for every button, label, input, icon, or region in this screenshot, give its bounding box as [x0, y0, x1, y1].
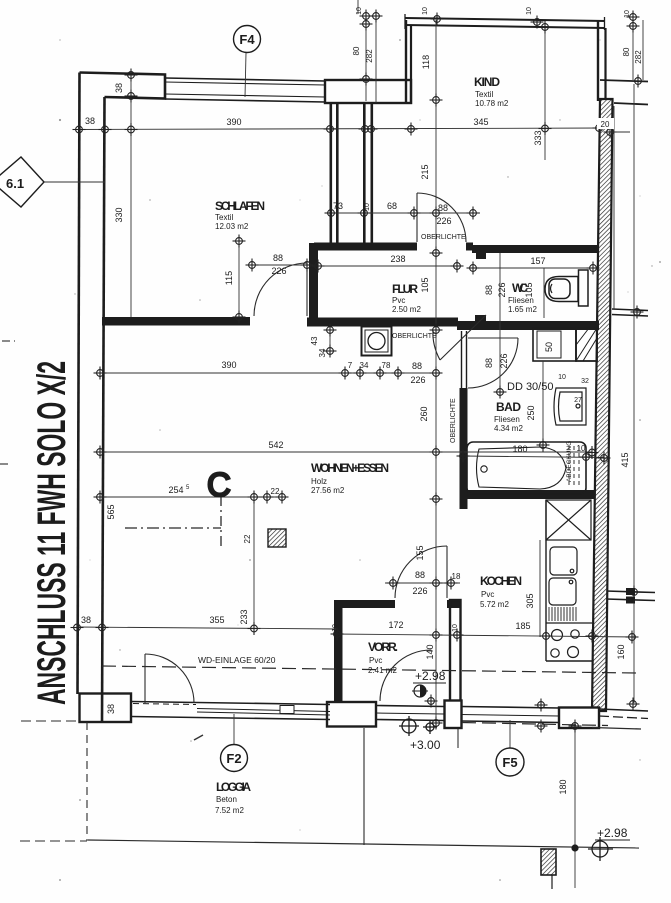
svg-text:Textil: Textil [475, 90, 493, 99]
svg-text:10: 10 [356, 7, 363, 15]
svg-text:88: 88 [273, 253, 283, 263]
svg-text:Textil: Textil [215, 213, 233, 222]
svg-text:282: 282 [365, 49, 374, 63]
svg-text:+2.98: +2.98 [415, 669, 446, 683]
svg-text:105: 105 [524, 282, 534, 297]
svg-text:88: 88 [412, 361, 422, 371]
svg-text:KIND: KIND [474, 75, 500, 89]
svg-text:27: 27 [574, 397, 582, 404]
svg-text:F5: F5 [502, 755, 517, 770]
svg-text:260: 260 [419, 406, 429, 421]
svg-text:140: 140 [425, 644, 435, 659]
svg-text:185: 185 [515, 621, 530, 631]
svg-text:68: 68 [387, 201, 397, 211]
svg-text:226: 226 [499, 353, 509, 368]
svg-text:4.34 m2: 4.34 m2 [494, 424, 523, 433]
svg-text:C: C [207, 466, 231, 503]
svg-text:333: 333 [533, 130, 543, 145]
svg-text:WOHNEN+ESSEN: WOHNEN+ESSEN [311, 461, 389, 475]
svg-text:233: 233 [239, 609, 249, 624]
svg-text:1.65 m2: 1.65 m2 [508, 305, 537, 314]
svg-text:80: 80 [352, 46, 361, 55]
svg-text:34: 34 [360, 361, 369, 370]
svg-text:ANSCHLUSS 11 FWH SOLO X/2: ANSCHLUSS 11 FWH SOLO X/2 [30, 361, 74, 705]
svg-text:226: 226 [497, 282, 507, 297]
svg-text:27.56 m2: 27.56 m2 [311, 486, 345, 495]
svg-text:172: 172 [388, 620, 403, 630]
svg-text:180: 180 [512, 444, 527, 454]
svg-text:2.41 m2: 2.41 m2 [368, 666, 397, 675]
svg-text:5.72 m2: 5.72 m2 [480, 600, 509, 609]
svg-text:18: 18 [452, 572, 461, 581]
svg-text:ABDECKUNG: ABDECKUNG [566, 441, 573, 482]
svg-text:73: 73 [333, 201, 343, 211]
svg-text:160: 160 [616, 644, 626, 659]
svg-text:38: 38 [85, 116, 95, 126]
svg-text:78: 78 [382, 361, 391, 370]
svg-text:10: 10 [452, 624, 459, 632]
svg-text:LOGGIA: LOGGIA [216, 780, 251, 794]
svg-text:OBERLICHTE: OBERLICHTE [450, 398, 457, 443]
svg-text:565: 565 [106, 504, 116, 519]
svg-text:88: 88 [484, 285, 494, 295]
svg-text:7: 7 [348, 361, 353, 370]
svg-text:10: 10 [422, 7, 429, 15]
svg-text:238: 238 [390, 254, 405, 264]
svg-text:226: 226 [436, 216, 451, 226]
svg-text:Holz: Holz [311, 477, 327, 486]
svg-text:50: 50 [544, 342, 554, 352]
svg-text:118: 118 [421, 55, 431, 69]
svg-text:Beton: Beton [216, 795, 237, 804]
svg-text:10: 10 [558, 374, 566, 381]
svg-text:OBERLICHTE: OBERLICHTE [392, 333, 437, 340]
svg-text:22: 22 [243, 534, 252, 543]
svg-text:390: 390 [226, 117, 241, 127]
svg-text:10: 10 [624, 10, 631, 18]
svg-text:FLUR: FLUR [392, 282, 418, 296]
svg-text:F2: F2 [226, 751, 241, 766]
svg-text:155: 155 [415, 545, 425, 560]
svg-text:+2.98: +2.98 [597, 826, 628, 840]
svg-text:Pvc: Pvc [481, 590, 494, 599]
svg-text:DD 30/50: DD 30/50 [507, 381, 553, 393]
svg-text:282: 282 [634, 50, 643, 64]
svg-text:330: 330 [114, 207, 124, 222]
svg-text:38: 38 [81, 615, 91, 625]
svg-text:F4: F4 [239, 32, 255, 47]
svg-text:OBERLICHTE: OBERLICHTE [421, 234, 466, 241]
svg-text:10: 10 [332, 624, 339, 632]
svg-text:345: 345 [473, 117, 488, 127]
svg-text:105: 105 [420, 277, 430, 292]
svg-text:BAD: BAD [496, 400, 521, 414]
svg-text:+3.00: +3.00 [410, 738, 441, 752]
svg-text:88: 88 [484, 358, 494, 368]
svg-text:WD-EINLAGE 60/20: WD-EINLAGE 60/20 [198, 655, 276, 665]
svg-text:Pvc: Pvc [392, 296, 405, 305]
svg-text:115: 115 [224, 271, 234, 285]
svg-text:415: 415 [620, 452, 630, 467]
svg-text:6.1: 6.1 [6, 176, 24, 191]
svg-text:215: 215 [420, 164, 430, 179]
svg-text:34: 34 [318, 348, 327, 357]
svg-text:KOCHEN: KOCHEN [480, 574, 522, 588]
svg-text:305: 305 [525, 593, 535, 608]
svg-text:43: 43 [310, 336, 319, 345]
svg-text:32: 32 [581, 378, 589, 385]
svg-text:10: 10 [364, 203, 371, 211]
svg-text:Pvc: Pvc [369, 656, 382, 665]
svg-text:12.03 m2: 12.03 m2 [215, 222, 249, 231]
svg-text:20: 20 [601, 120, 610, 129]
svg-text:10.78 m2: 10.78 m2 [475, 99, 509, 108]
svg-text:157: 157 [530, 256, 545, 266]
svg-text:250: 250 [526, 405, 536, 420]
svg-text:22: 22 [271, 487, 280, 496]
svg-text:390: 390 [221, 360, 236, 370]
svg-text:226: 226 [410, 375, 425, 385]
svg-text:226: 226 [412, 586, 427, 596]
svg-text:226: 226 [271, 266, 286, 276]
svg-text:542: 542 [268, 440, 283, 450]
svg-text:Fliesen: Fliesen [494, 415, 520, 424]
svg-text:38: 38 [106, 704, 116, 714]
svg-text:254: 254 [168, 485, 183, 495]
svg-text:7.52 m2: 7.52 m2 [215, 806, 244, 815]
svg-text:38: 38 [114, 83, 124, 93]
svg-text:88: 88 [415, 570, 425, 580]
svg-text:2.50 m2: 2.50 m2 [392, 305, 421, 314]
svg-text:VORR.: VORR. [368, 640, 398, 654]
svg-text:355: 355 [209, 615, 224, 625]
svg-text:SCHLAFEN: SCHLAFEN [215, 199, 265, 213]
svg-text:180: 180 [558, 779, 568, 794]
svg-text:80: 80 [622, 47, 631, 56]
svg-text:10: 10 [526, 7, 533, 15]
svg-text:88: 88 [438, 203, 448, 213]
svg-text:10: 10 [577, 444, 586, 453]
